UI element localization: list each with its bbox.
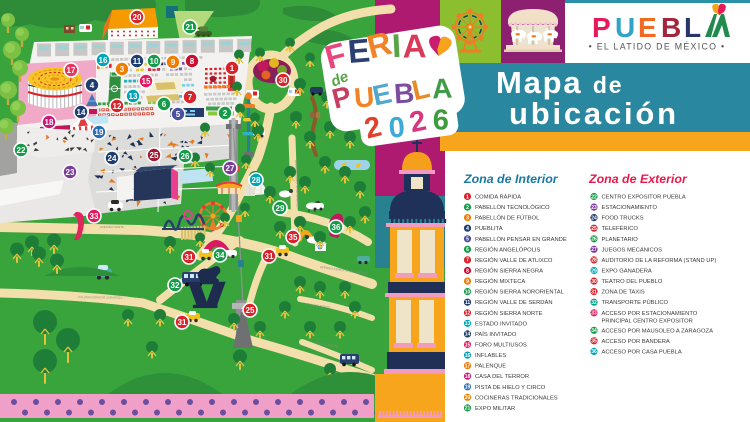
svg-text:A: A [431,72,453,104]
svg-text:CASA DEL TERROR: CASA DEL TERROR [475,374,529,380]
svg-text:FORO MULTIUSOS: FORO MULTIUSOS [475,343,527,349]
svg-text:31: 31 [178,318,187,327]
svg-text:1: 1 [466,194,469,200]
svg-text:11: 11 [133,57,142,66]
svg-text:U: U [615,12,635,43]
svg-text:6: 6 [466,247,469,253]
svg-text:30: 30 [279,76,288,85]
svg-text:18: 18 [465,374,471,380]
svg-text:Zona de Interior: Zona de Interior [463,172,559,186]
svg-text:ACCESO POR ESTACIONAMIENTO: ACCESO POR ESTACIONAMIENTO [602,311,698,317]
svg-text:11: 11 [465,300,471,306]
svg-text:REGIÓN MIXTECA: REGIÓN MIXTECA [475,278,525,285]
svg-text:EXPO MILITAR: EXPO MILITAR [475,406,515,412]
svg-text:9: 9 [466,279,469,285]
svg-text:PABELLÓN DE FÚTBOL: PABELLÓN DE FÚTBOL [475,215,540,222]
svg-text:20: 20 [465,395,471,401]
svg-text:34: 34 [591,328,597,334]
svg-text:• EL LATIDO DE MÉXICO •: • EL LATIDO DE MÉXICO • [589,42,726,52]
svg-text:19: 19 [95,128,104,137]
svg-text:17: 17 [67,66,76,75]
svg-text:E: E [638,12,657,43]
svg-text:I: I [391,27,402,64]
svg-text:ubicación: ubicación [509,96,679,131]
svg-text:REGIÓN SIERRA NEGRA: REGIÓN SIERRA NEGRA [475,268,543,275]
svg-text:EXPO GANADERA: EXPO GANADERA [602,269,652,275]
svg-text:7: 7 [466,258,469,264]
svg-text:21: 21 [465,406,471,412]
svg-text:17: 17 [465,363,471,369]
svg-text:P: P [592,12,611,43]
svg-text:FOOD TRUCKS: FOOD TRUCKS [602,216,644,222]
svg-text:4: 4 [466,226,469,232]
svg-text:24: 24 [108,154,117,163]
svg-text:30: 30 [591,279,597,285]
svg-text:0: 0 [388,112,406,145]
svg-text:26: 26 [181,152,190,161]
svg-text:10: 10 [150,57,159,66]
svg-text:19: 19 [465,385,471,391]
svg-text:REGIÓN ANGELÓPOLIS: REGIÓN ANGELÓPOLIS [475,246,541,253]
svg-text:6: 6 [433,105,449,137]
svg-text:35: 35 [289,233,298,242]
svg-text:CENTRO EXPOSITOR PUEBLA: CENTRO EXPOSITOR PUEBLA [602,195,686,201]
svg-text:27: 27 [226,164,235,173]
svg-text:3: 3 [466,215,469,221]
svg-text:PABELLÓN TECNOLÓGICO: PABELLÓN TECNOLÓGICO [475,204,550,211]
svg-text:COMIDA RÁPIDA: COMIDA RÁPIDA [475,194,521,201]
svg-text:33: 33 [90,212,99,221]
svg-text:32: 32 [591,300,597,306]
svg-text:REGIÓN SIERRA NORORIENTAL: REGIÓN SIERRA NORORIENTAL [475,289,565,296]
svg-text:A: A [402,27,426,64]
svg-text:TELEFÉRICO: TELEFÉRICO [602,225,639,232]
svg-text:PLANETARIO: PLANETARIO [602,237,639,243]
svg-text:36: 36 [591,349,597,355]
svg-text:COCINERAS TRADICIONALES: COCINERAS TRADICIONALES [475,395,558,401]
svg-text:29: 29 [591,268,597,274]
svg-text:REGIÓN VALLE DE SERDÁN: REGIÓN VALLE DE SERDÁN [475,299,553,306]
svg-text:32: 32 [171,281,180,290]
svg-text:9: 9 [171,58,176,67]
svg-text:25: 25 [591,226,597,232]
svg-text:12: 12 [113,102,122,111]
svg-text:24: 24 [591,215,597,221]
svg-text:REGIÓN VALLE DE ATLIXCO: REGIÓN VALLE DE ATLIXCO [475,257,553,264]
svg-text:7: 7 [188,93,193,102]
svg-text:AUDITORIO DE LA REFORMA (STAND: AUDITORIO DE LA REFORMA (STAND UP) [602,258,717,264]
svg-text:5: 5 [176,110,181,119]
svg-text:31: 31 [591,289,597,295]
svg-text:20: 20 [133,13,142,22]
svg-text:CALZADA IGNACIO ZARAGOZA: CALZADA IGNACIO ZARAGOZA [78,295,123,300]
svg-text:REGIÓN SIERRA NORTE: REGIÓN SIERRA NORTE [475,310,543,317]
svg-text:34: 34 [216,251,225,260]
svg-text:ESTACIONAMIENTO: ESTACIONAMIENTO [602,205,658,211]
svg-text:25: 25 [150,151,159,160]
svg-text:ACCESO POR BANDERA: ACCESO POR BANDERA [602,339,670,345]
svg-text:33: 33 [591,311,597,317]
svg-text:ESTADO INVITADO: ESTADO INVITADO [475,321,527,327]
svg-text:28: 28 [252,176,261,185]
svg-text:36: 36 [332,223,341,232]
svg-text:Zona de Exterior: Zona de Exterior [588,172,688,186]
svg-text:26: 26 [591,237,597,243]
svg-text:2: 2 [223,109,228,118]
svg-text:JUEGOS MECÁNICOS: JUEGOS MECÁNICOS [602,246,663,253]
svg-text:TEATRO DEL PUEBLO: TEATRO DEL PUEBLO [602,279,663,285]
svg-text:13: 13 [129,92,138,101]
svg-text:PISTA DE HIELO Y CIRCO: PISTA DE HIELO Y CIRCO [475,385,546,391]
svg-text:23: 23 [591,205,597,211]
svg-text:8: 8 [466,268,469,274]
svg-text:14: 14 [77,108,86,117]
svg-text:PAÍS INVITADO: PAÍS INVITADO [475,331,517,338]
svg-text:8: 8 [190,57,195,66]
svg-text:25: 25 [246,306,255,315]
svg-text:15: 15 [142,77,151,86]
svg-text:22: 22 [17,146,26,155]
svg-text:2: 2 [466,205,469,211]
svg-text:27: 27 [591,247,597,253]
svg-text:21: 21 [186,23,195,32]
svg-text:ACCESO POR CASA PUEBLA: ACCESO POR CASA PUEBLA [602,349,682,355]
svg-text:23: 23 [66,168,75,177]
svg-text:PRINCIPAL CENTRO EXPOSITOR: PRINCIPAL CENTRO EXPOSITOR [602,318,693,324]
svg-text:6: 6 [162,100,167,109]
svg-text:L: L [684,12,701,43]
svg-text:13: 13 [465,321,471,327]
svg-text:12: 12 [465,311,471,317]
svg-text:14: 14 [465,332,471,338]
svg-text:35: 35 [591,339,597,345]
svg-text:29: 29 [276,204,285,213]
svg-text:PUEBLITA: PUEBLITA [475,226,503,232]
svg-text:PALENQUE: PALENQUE [475,364,506,370]
svg-text:16: 16 [99,56,108,65]
svg-text:31: 31 [265,252,274,261]
svg-text:INFLABLES: INFLABLES [475,353,506,359]
svg-text:4: 4 [90,81,95,90]
svg-text:15: 15 [465,342,471,348]
svg-text:10: 10 [465,289,471,295]
svg-text:ZONA DE TAXIS: ZONA DE TAXIS [602,290,645,296]
svg-text:AVENIDA NORTE: AVENIDA NORTE [100,225,124,229]
svg-text:16: 16 [465,353,471,359]
svg-text:PABELLÓN PENSAR EN GRANDE: PABELLÓN PENSAR EN GRANDE [475,236,567,243]
svg-text:3: 3 [120,65,125,74]
svg-text:ACCESO POR MAUSOLEO A ZARAGOZA: ACCESO POR MAUSOLEO A ZARAGOZA [602,328,714,334]
svg-text:18: 18 [45,118,54,127]
svg-text:31: 31 [185,253,194,262]
svg-text:1: 1 [230,64,235,73]
svg-text:B: B [661,12,681,43]
svg-text:22: 22 [591,194,597,200]
svg-text:TRANSPORTE PÚBLICO: TRANSPORTE PÚBLICO [602,299,669,306]
svg-text:28: 28 [591,258,597,264]
svg-text:5: 5 [466,237,469,243]
